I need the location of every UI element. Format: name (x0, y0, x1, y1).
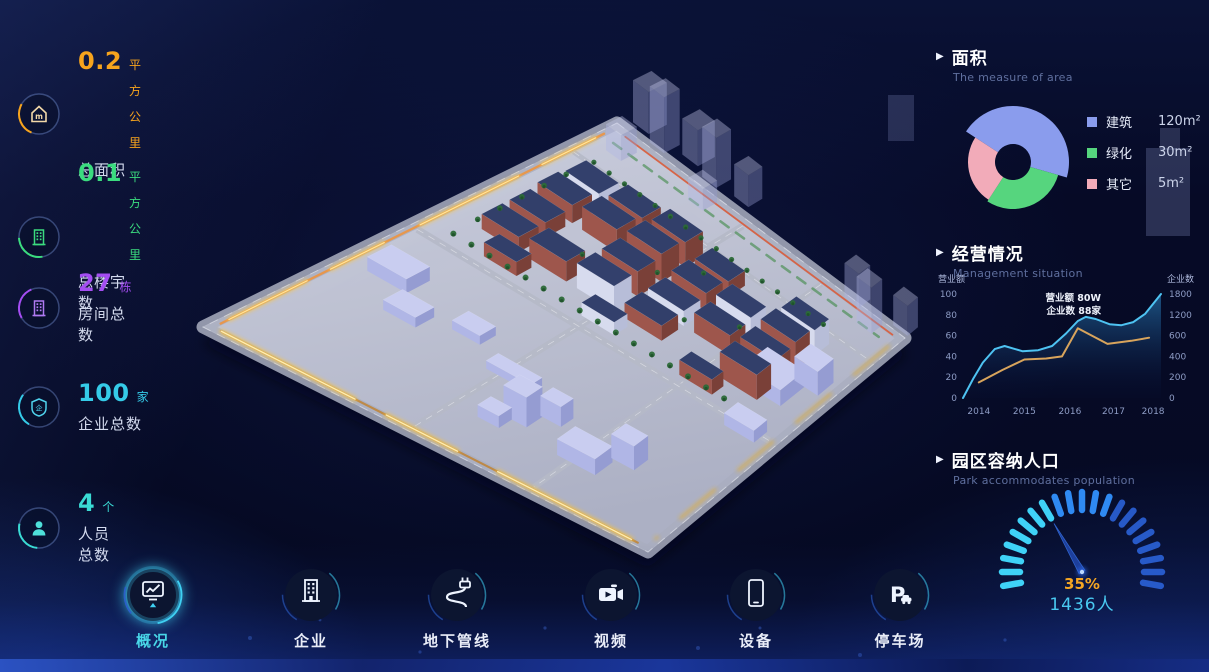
nav-label: 概况 (91, 630, 215, 651)
legend-value: 5m² (1158, 176, 1184, 191)
svg-text:80: 80 (946, 311, 958, 321)
svg-text:1800: 1800 (1169, 290, 1192, 300)
legend-label: 建筑 (1106, 112, 1148, 131)
area-house-icon: m (16, 91, 62, 137)
svg-text:20: 20 (946, 373, 958, 383)
legend-value: 30m² (1158, 145, 1192, 160)
svg-text:0: 0 (1169, 394, 1175, 404)
stat-total-enterprises: 企 100 家 企业总数 (16, 380, 149, 434)
panel-title: ▶ 面积 (936, 44, 1206, 69)
stat-value: 27 (78, 270, 112, 296)
svg-text:1200: 1200 (1169, 311, 1192, 321)
panel-title-text: 园区容纳人口 (952, 447, 1060, 472)
svg-text:2018: 2018 (1142, 407, 1165, 417)
parking-icon: P (869, 564, 931, 626)
device-tablet-icon (725, 564, 787, 626)
svg-text:60: 60 (946, 332, 958, 342)
panel-arrow-icon: ▶ (936, 247, 945, 258)
nav-label: 地下管线 (395, 630, 519, 651)
enterprise-building-icon (280, 564, 342, 626)
stat-total-rooms: 27 栋 房间总数 (16, 270, 131, 345)
stat-value: 0.2 (78, 48, 122, 74)
area-legend: 建筑 120m² 绿化 30m² 其它 5m² (1087, 106, 1201, 199)
stat-unit: 家 (137, 384, 149, 410)
legend-row-other: 其它 5m² (1087, 168, 1201, 199)
bottom-nav: 概况 企业 (0, 562, 1209, 672)
legend-label: 绿化 (1106, 143, 1148, 162)
nav-label: 设备 (694, 630, 818, 651)
legend-row-green: 绿化 30m² (1087, 137, 1201, 168)
nav-item-overview[interactable]: 概况 (91, 564, 215, 651)
stat-label: 人员总数 (78, 523, 114, 565)
legend-swatch (1087, 179, 1097, 189)
stat-unit: 平方公里 (129, 52, 141, 156)
rooms-building-icon (16, 285, 62, 331)
nav-item-video[interactable]: 视频 (549, 564, 673, 651)
svg-text:40: 40 (946, 352, 958, 362)
svg-text:2015: 2015 (1013, 407, 1036, 417)
stat-unit: 个 (102, 494, 114, 520)
stat-total-people: 4 个 人员总数 (16, 490, 114, 565)
stat-label: 企业总数 (78, 413, 149, 434)
smart-park-dashboard: m 0.2 平方公里 总面积 (0, 0, 1209, 672)
area-donut-chart (955, 104, 1075, 224)
svg-text:企: 企 (36, 404, 43, 413)
legend-value: 120m² (1158, 114, 1201, 129)
video-camera-icon (580, 564, 642, 626)
nav-item-pipeline[interactable]: 地下管线 (395, 564, 519, 651)
svg-text:0: 0 (951, 394, 957, 404)
stat-unit: 平方公里 (129, 164, 141, 268)
svg-text:企业数 88家: 企业数 88家 (1045, 305, 1101, 317)
nav-label: 停车场 (838, 630, 962, 651)
svg-text:m: m (35, 112, 43, 121)
legend-label: 其它 (1106, 174, 1148, 193)
panel-population: ▶ 园区容纳人口 Park accommodates population (936, 447, 1206, 487)
panel-title-text: 经营情况 (952, 240, 1024, 265)
svg-text:400: 400 (1169, 352, 1186, 362)
panel-title: ▶ 经营情况 (936, 240, 1206, 265)
nav-label: 企业 (249, 630, 373, 651)
nav-item-enterprise[interactable]: 企业 (249, 564, 373, 651)
nav-item-parking[interactable]: P 停车场 (838, 564, 962, 651)
svg-text:200: 200 (1169, 373, 1186, 383)
panel-title-text: 面积 (952, 44, 988, 69)
enterprise-shield-icon: 企 (16, 384, 62, 430)
stat-unit: 栋 (119, 274, 131, 300)
person-icon (16, 505, 62, 551)
svg-text:100: 100 (940, 290, 957, 300)
stat-value: 0.1 (78, 160, 122, 186)
stat-value: 4 (78, 490, 95, 516)
legend-swatch (1087, 148, 1097, 158)
stat-value: 100 (78, 380, 130, 406)
panel-subtitle: The measure of area (953, 71, 1206, 84)
panel-area: ▶ 面积 The measure of area (936, 44, 1206, 84)
legend-row-building: 建筑 120m² (1087, 106, 1201, 137)
legend-swatch (1087, 117, 1097, 127)
stat-label: 房间总数 (78, 303, 131, 345)
svg-text:600: 600 (1169, 332, 1186, 342)
panel-arrow-icon: ▶ (936, 454, 945, 465)
nav-item-device[interactable]: 设备 (694, 564, 818, 651)
pipeline-plug-icon (426, 564, 488, 626)
svg-text:2017: 2017 (1102, 407, 1125, 417)
svg-text:营业额 80W: 营业额 80W (1045, 292, 1101, 304)
management-line-chart: 营业额企业数0204060801000200400600120018002014… (935, 270, 1207, 422)
buildings-icon (16, 214, 62, 260)
panel-arrow-icon: ▶ (936, 51, 945, 62)
svg-text:营业额: 营业额 (938, 273, 965, 285)
svg-text:2016: 2016 (1058, 407, 1081, 417)
overview-monitor-icon (122, 564, 184, 626)
svg-text:2014: 2014 (967, 407, 990, 417)
panel-title: ▶ 园区容纳人口 (936, 447, 1206, 472)
svg-text:企业数: 企业数 (1167, 273, 1194, 285)
nav-label: 视频 (549, 630, 673, 651)
